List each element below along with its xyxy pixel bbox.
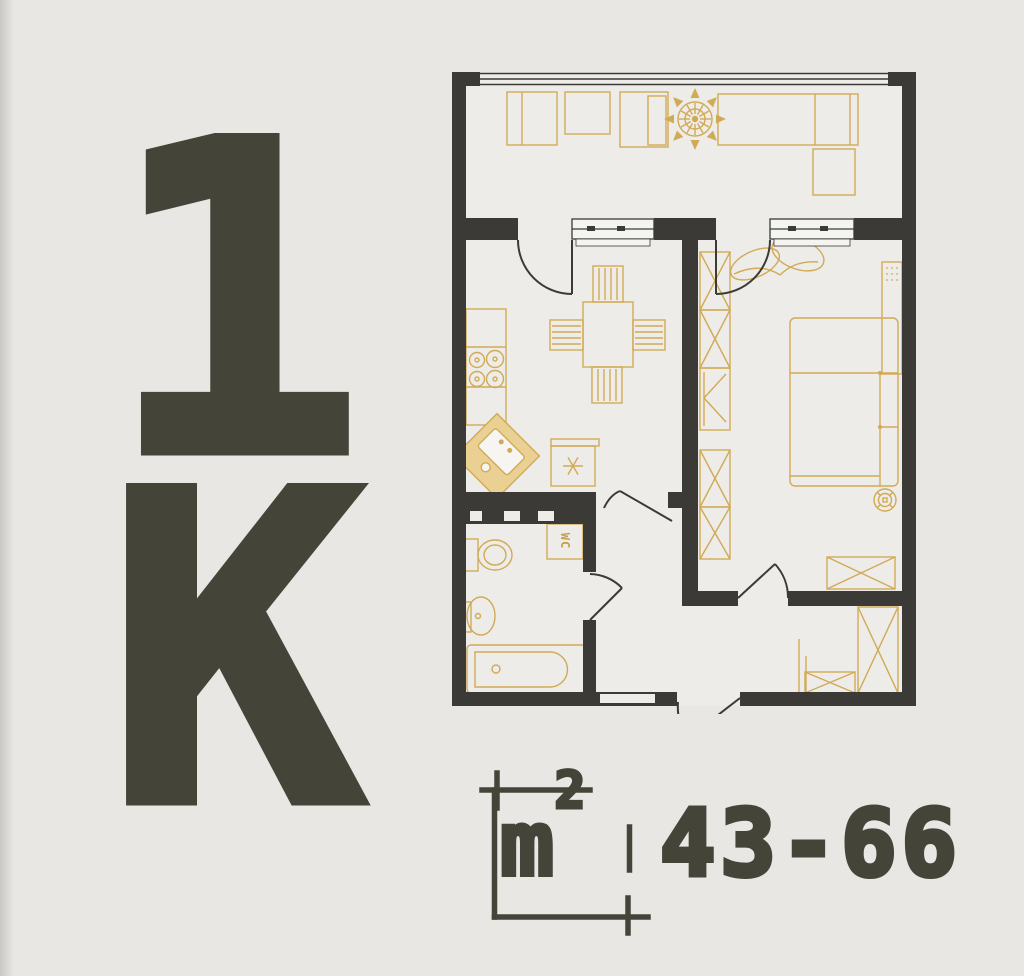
left-edge-shadow [0,0,14,976]
type-letter: К [106,478,374,828]
unit-m2: m2 [500,800,586,890]
floorplan: WC [450,62,920,714]
unit-letter: m [500,792,554,897]
apartment-type-badge: 1К [106,128,374,829]
palm-decor-icon [664,88,726,150]
unit-superscript: 2 [554,765,585,817]
area-range: 43-66 [660,798,962,890]
wc-label: WC [558,533,572,549]
